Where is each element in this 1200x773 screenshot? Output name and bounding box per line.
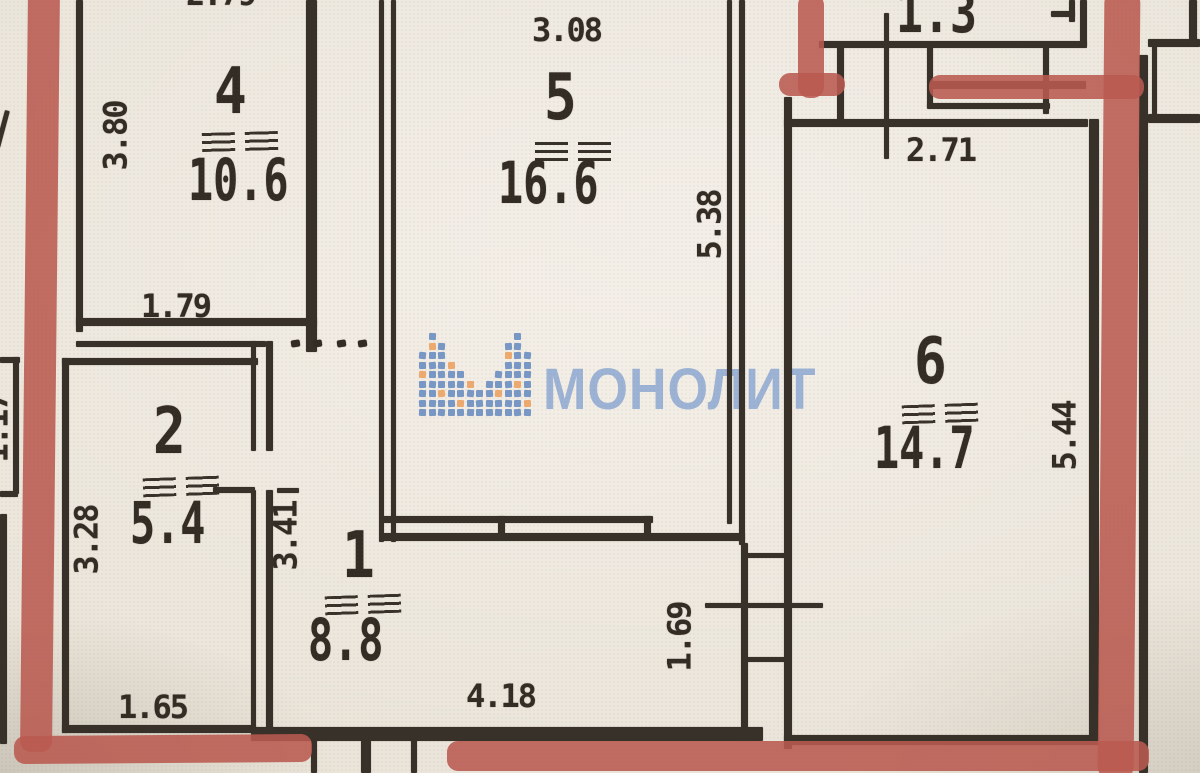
wall-segment: [1139, 55, 1148, 773]
wall-segment: [213, 487, 255, 493]
wall-segment: [705, 603, 823, 608]
logo-mosaic-square: [447, 409, 454, 416]
logo-mosaic-square: [447, 361, 454, 368]
logo-mosaic-square: [447, 380, 454, 387]
logo-mosaic-square: [419, 409, 426, 416]
logo-mosaic-square: [428, 352, 435, 359]
logo-mosaic-square: [514, 352, 521, 359]
dotted-boundary-dot: [313, 339, 323, 347]
dim-room4-left: 3.80: [100, 101, 132, 170]
logo-mosaic-square: [466, 399, 473, 406]
logo-mosaic-square: [429, 371, 436, 378]
wall-segment: [747, 553, 787, 558]
logo-mosaic-square: [495, 390, 502, 397]
room-5-number: 5: [544, 66, 577, 130]
room-2-area: 5.4: [130, 494, 205, 552]
wall-segment: [62, 358, 69, 733]
wall-segment: [1089, 119, 1099, 745]
red-marker-line: [779, 73, 845, 96]
wall-segment: [251, 727, 763, 741]
logo-mosaic-square: [495, 399, 502, 406]
dotted-boundary-dot: [291, 339, 301, 347]
dim-room5-top: 3.08: [532, 14, 601, 46]
logo-mosaic-square: [495, 409, 502, 416]
wall-segment: [76, 0, 83, 332]
red-marker-line: [1098, 0, 1141, 773]
logo-mosaic-square: [447, 390, 454, 397]
logo-mosaic-square: [447, 399, 454, 406]
logo-mosaic-square: [438, 400, 445, 407]
room-4-number: 4: [214, 60, 247, 124]
wall-segment: [747, 657, 787, 662]
logo-mosaic-square: [514, 361, 521, 368]
wall-segment: [1080, 0, 1087, 46]
wall-segment: [0, 514, 7, 744]
logo-mosaic-square: [514, 390, 521, 397]
wall-segment: [1152, 46, 1157, 116]
floor-plan-scan: 2.79 4 10.6 3.80 1.79 3.08 5 16.6 5.38 1…: [0, 0, 1200, 773]
logo-mosaic-square: [523, 371, 530, 378]
logo-mosaic-square: [428, 399, 435, 406]
wall-segment: [927, 103, 1050, 109]
logo-mosaic-square: [428, 380, 436, 388]
red-marker-line: [20, 0, 60, 752]
logo-mosaic-square: [514, 399, 521, 406]
room-1-number: 1: [342, 524, 375, 588]
dim-room4-top-partial: 2.79: [186, 0, 255, 10]
dim-room6-top: 2.71: [906, 134, 975, 166]
logo-mosaic-square: [419, 361, 426, 368]
wall-segment: [0, 491, 18, 497]
wall-segment: [784, 97, 792, 749]
logo-mosaic-square: [457, 380, 464, 387]
logo-mosaic-square: [504, 352, 511, 359]
logo-mosaic-square: [419, 399, 426, 406]
dim-left-edge-partial: 1.17: [0, 393, 13, 462]
wall-segment: [381, 516, 653, 523]
wall-segment: [381, 533, 745, 541]
dim-shaft-right: 1.69: [664, 602, 696, 671]
logo-mosaic-square: [504, 371, 511, 378]
logo-mosaic-square: [485, 390, 492, 397]
wall-segment: [306, 0, 317, 352]
wall-segment: [361, 740, 371, 773]
logo-mosaic-square: [523, 361, 530, 368]
logo-mosaic-square: [457, 390, 464, 397]
logo-mosaic-square: [447, 371, 454, 378]
wall-segment: [741, 543, 748, 741]
wall-segment: [13, 357, 19, 494]
logo-mosaic-square: [504, 361, 511, 368]
wall-segment: [62, 358, 258, 365]
wall-segment: [76, 318, 317, 326]
wall-segment: [391, 0, 396, 542]
logo-mosaic-square: [514, 333, 521, 340]
logo-mosaic-square: [467, 381, 474, 388]
wall-segment: [0, 110, 10, 148]
logo-mosaic-square: [428, 409, 435, 416]
logo-mosaic-square: [457, 399, 464, 406]
logo-mosaic-square: [514, 409, 522, 417]
wall-segment: [277, 488, 299, 493]
logo-mosaic-square: [428, 333, 435, 340]
logo-mosaic-square: [505, 390, 512, 397]
logo-mosaic-square: [438, 371, 445, 378]
logo-mosaic-square: [504, 399, 512, 407]
logo-mosaic-square: [438, 342, 445, 349]
logo-mosaic-square: [438, 390, 446, 398]
room-2-number: 2: [153, 400, 186, 464]
dim-room2-bottom: 1.65: [118, 691, 187, 723]
wall-segment: [1189, 0, 1197, 46]
dim-room2-right: 3.41: [270, 501, 302, 570]
logo-mosaic-square: [523, 390, 530, 397]
balcony-area-label: 1.3: [896, 0, 977, 42]
logo-mosaic-square: [466, 390, 474, 398]
logo-mosaic-square: [514, 371, 521, 378]
logo-mosaic-square: [504, 342, 511, 349]
logo-mosaic-square: [495, 371, 503, 379]
wall-segment: [411, 740, 417, 773]
logo-mosaic-square: [419, 371, 426, 378]
watermark-text: МОНОЛИТ: [543, 361, 816, 419]
wall-segment: [884, 13, 889, 159]
dim-room5-right: 5.38: [694, 190, 726, 259]
wall-segment: [1069, 0, 1075, 22]
logo-mosaic-square: [438, 361, 445, 368]
logo-mosaic-square: [514, 342, 521, 349]
wall-segment: [644, 516, 651, 538]
wall-segment: [784, 119, 1088, 127]
room-5-area: 16.6: [498, 154, 599, 212]
logo-mosaic-square: [419, 352, 427, 360]
wall-segment: [251, 490, 256, 733]
dim-room2-left: 3.28: [71, 505, 103, 574]
logo-mosaic-square: [523, 409, 530, 416]
logo-mosaic-square: [438, 409, 446, 417]
wall-segment: [739, 0, 745, 545]
dotted-boundary-dot: [358, 339, 368, 347]
wall-segment: [76, 341, 266, 347]
logo-mosaic-square: [523, 380, 530, 387]
logo-mosaic-square: [523, 399, 530, 406]
logo-mosaic-square: [457, 371, 464, 378]
dim-room6-right: 5.44: [1049, 401, 1081, 470]
logo-mosaic-square: [438, 352, 445, 359]
logo-mosaic-square: [476, 409, 483, 416]
logo-mosaic-square: [485, 399, 492, 406]
logo-mosaic-square: [419, 390, 426, 397]
logo-mosaic-square: [428, 342, 435, 349]
room-6-area: 14.7: [874, 419, 975, 477]
room-6-number: 6: [914, 330, 947, 394]
logo-mosaic-square: [466, 409, 473, 416]
room-4-area: 10.6: [188, 151, 289, 209]
logo-mosaic-square: [438, 380, 445, 387]
room-1-area: 8.8: [308, 611, 383, 669]
logo-mosaic-square: [485, 380, 492, 387]
wall-segment: [379, 0, 384, 542]
wall-segment: [266, 490, 273, 733]
red-marker-line: [447, 741, 1149, 771]
logo-mosaic-square: [419, 380, 426, 387]
dim-room1-bottom: 4.18: [466, 680, 535, 712]
red-marker-line: [929, 75, 1144, 99]
wall-segment: [62, 725, 256, 733]
red-marker-line: [14, 734, 312, 764]
logo-mosaic-square: [523, 352, 531, 360]
logo-mosaic-square: [428, 361, 436, 369]
logo-mosaic-square: [495, 380, 502, 387]
logo-mosaic-square: [457, 409, 464, 416]
logo-mosaic-square: [504, 409, 511, 416]
wall-segment: [727, 0, 732, 524]
wall-segment: [498, 516, 505, 538]
logo-mosaic-square: [485, 409, 492, 416]
logo-mosaic-square: [476, 399, 484, 407]
logo-mosaic-square: [476, 390, 483, 397]
logo-mosaic-square: [514, 380, 521, 387]
logo-mosaic-square: [504, 380, 512, 388]
wall-segment: [266, 341, 273, 451]
dotted-boundary-dot: [337, 339, 347, 347]
logo-mosaic-square: [428, 390, 435, 397]
